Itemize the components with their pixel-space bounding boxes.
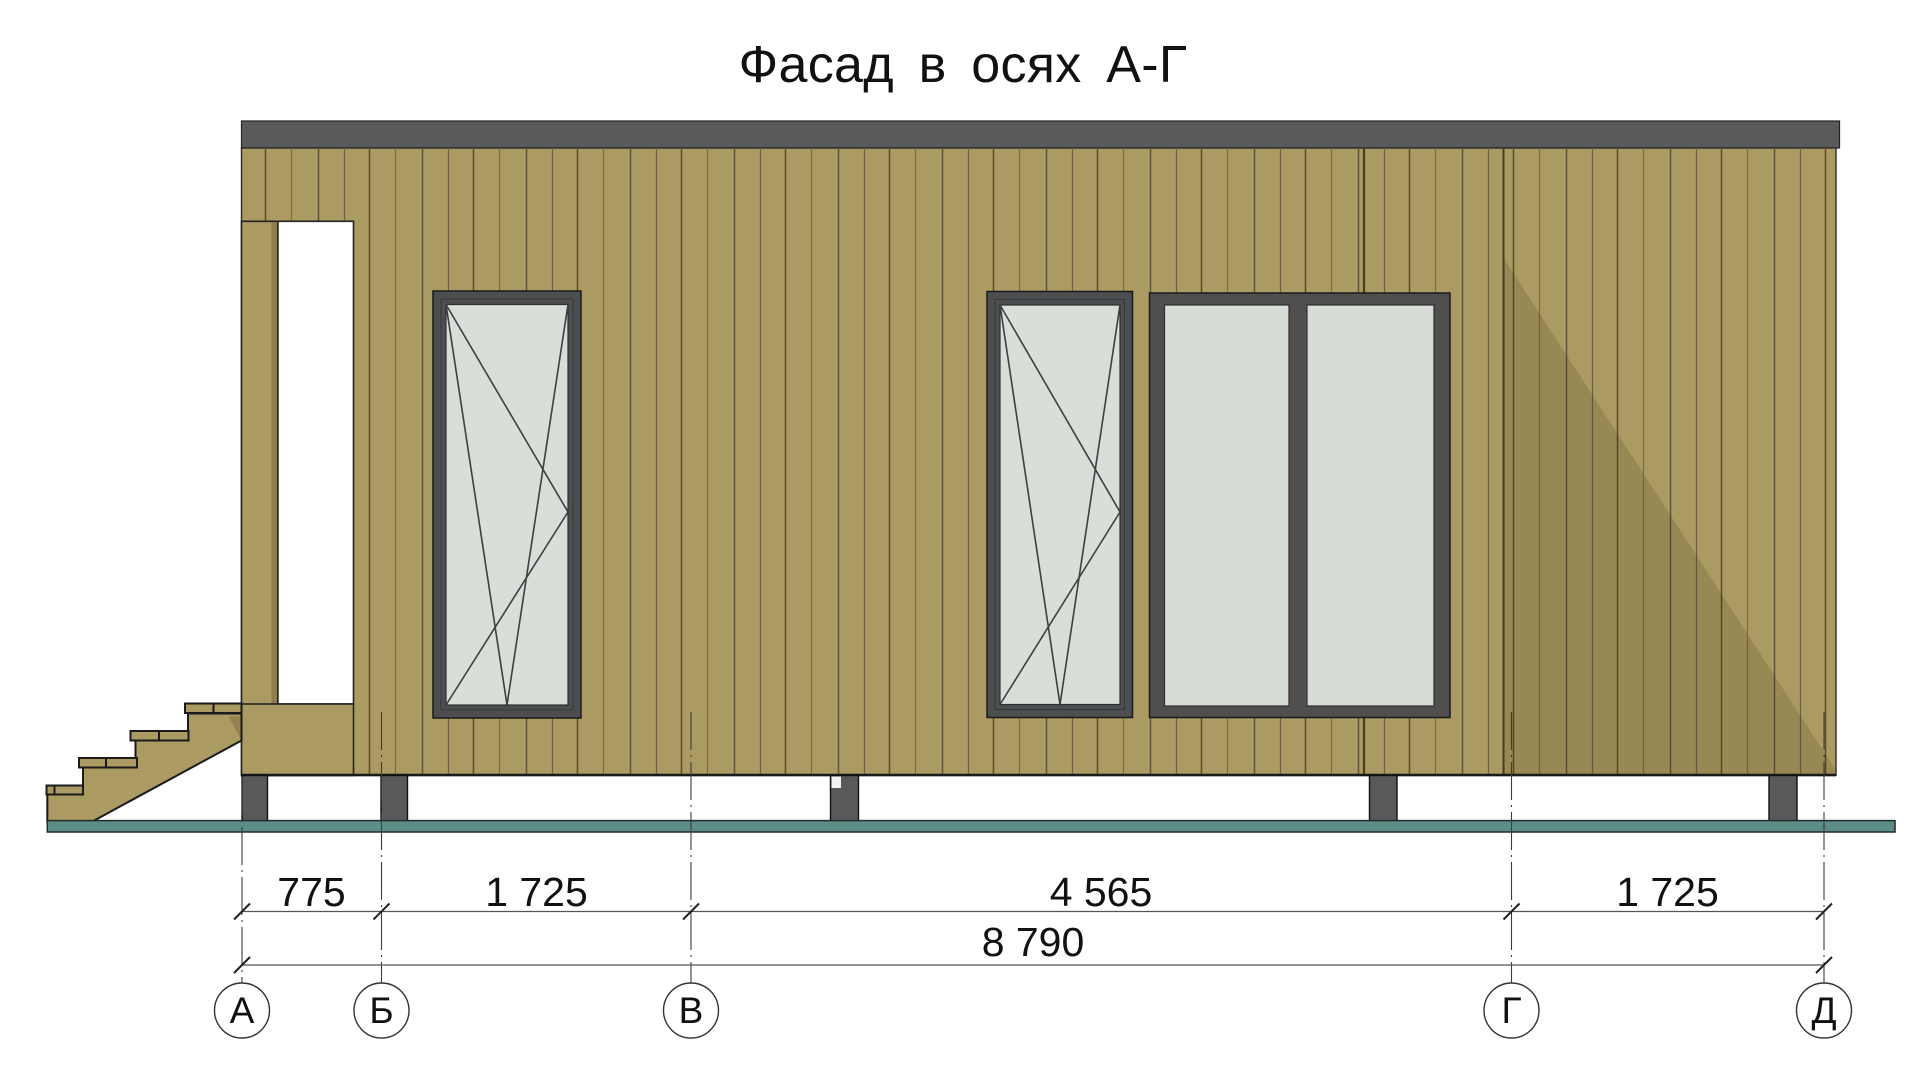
svg-text:8 790: 8 790 <box>982 919 1085 965</box>
svg-text:1 725: 1 725 <box>485 869 588 915</box>
svg-text:1 725: 1 725 <box>1616 869 1719 915</box>
svg-text:Д: Д <box>1811 990 1836 1031</box>
svg-text:775: 775 <box>277 869 345 915</box>
svg-text:А: А <box>230 990 255 1031</box>
svg-text:Фасад в осях А-Г: Фасад в осях А-Г <box>739 36 1188 94</box>
svg-text:Г: Г <box>1501 990 1521 1031</box>
svg-text:В: В <box>679 990 704 1031</box>
svg-text:4 565: 4 565 <box>1050 869 1153 915</box>
svg-text:Б: Б <box>369 990 393 1031</box>
